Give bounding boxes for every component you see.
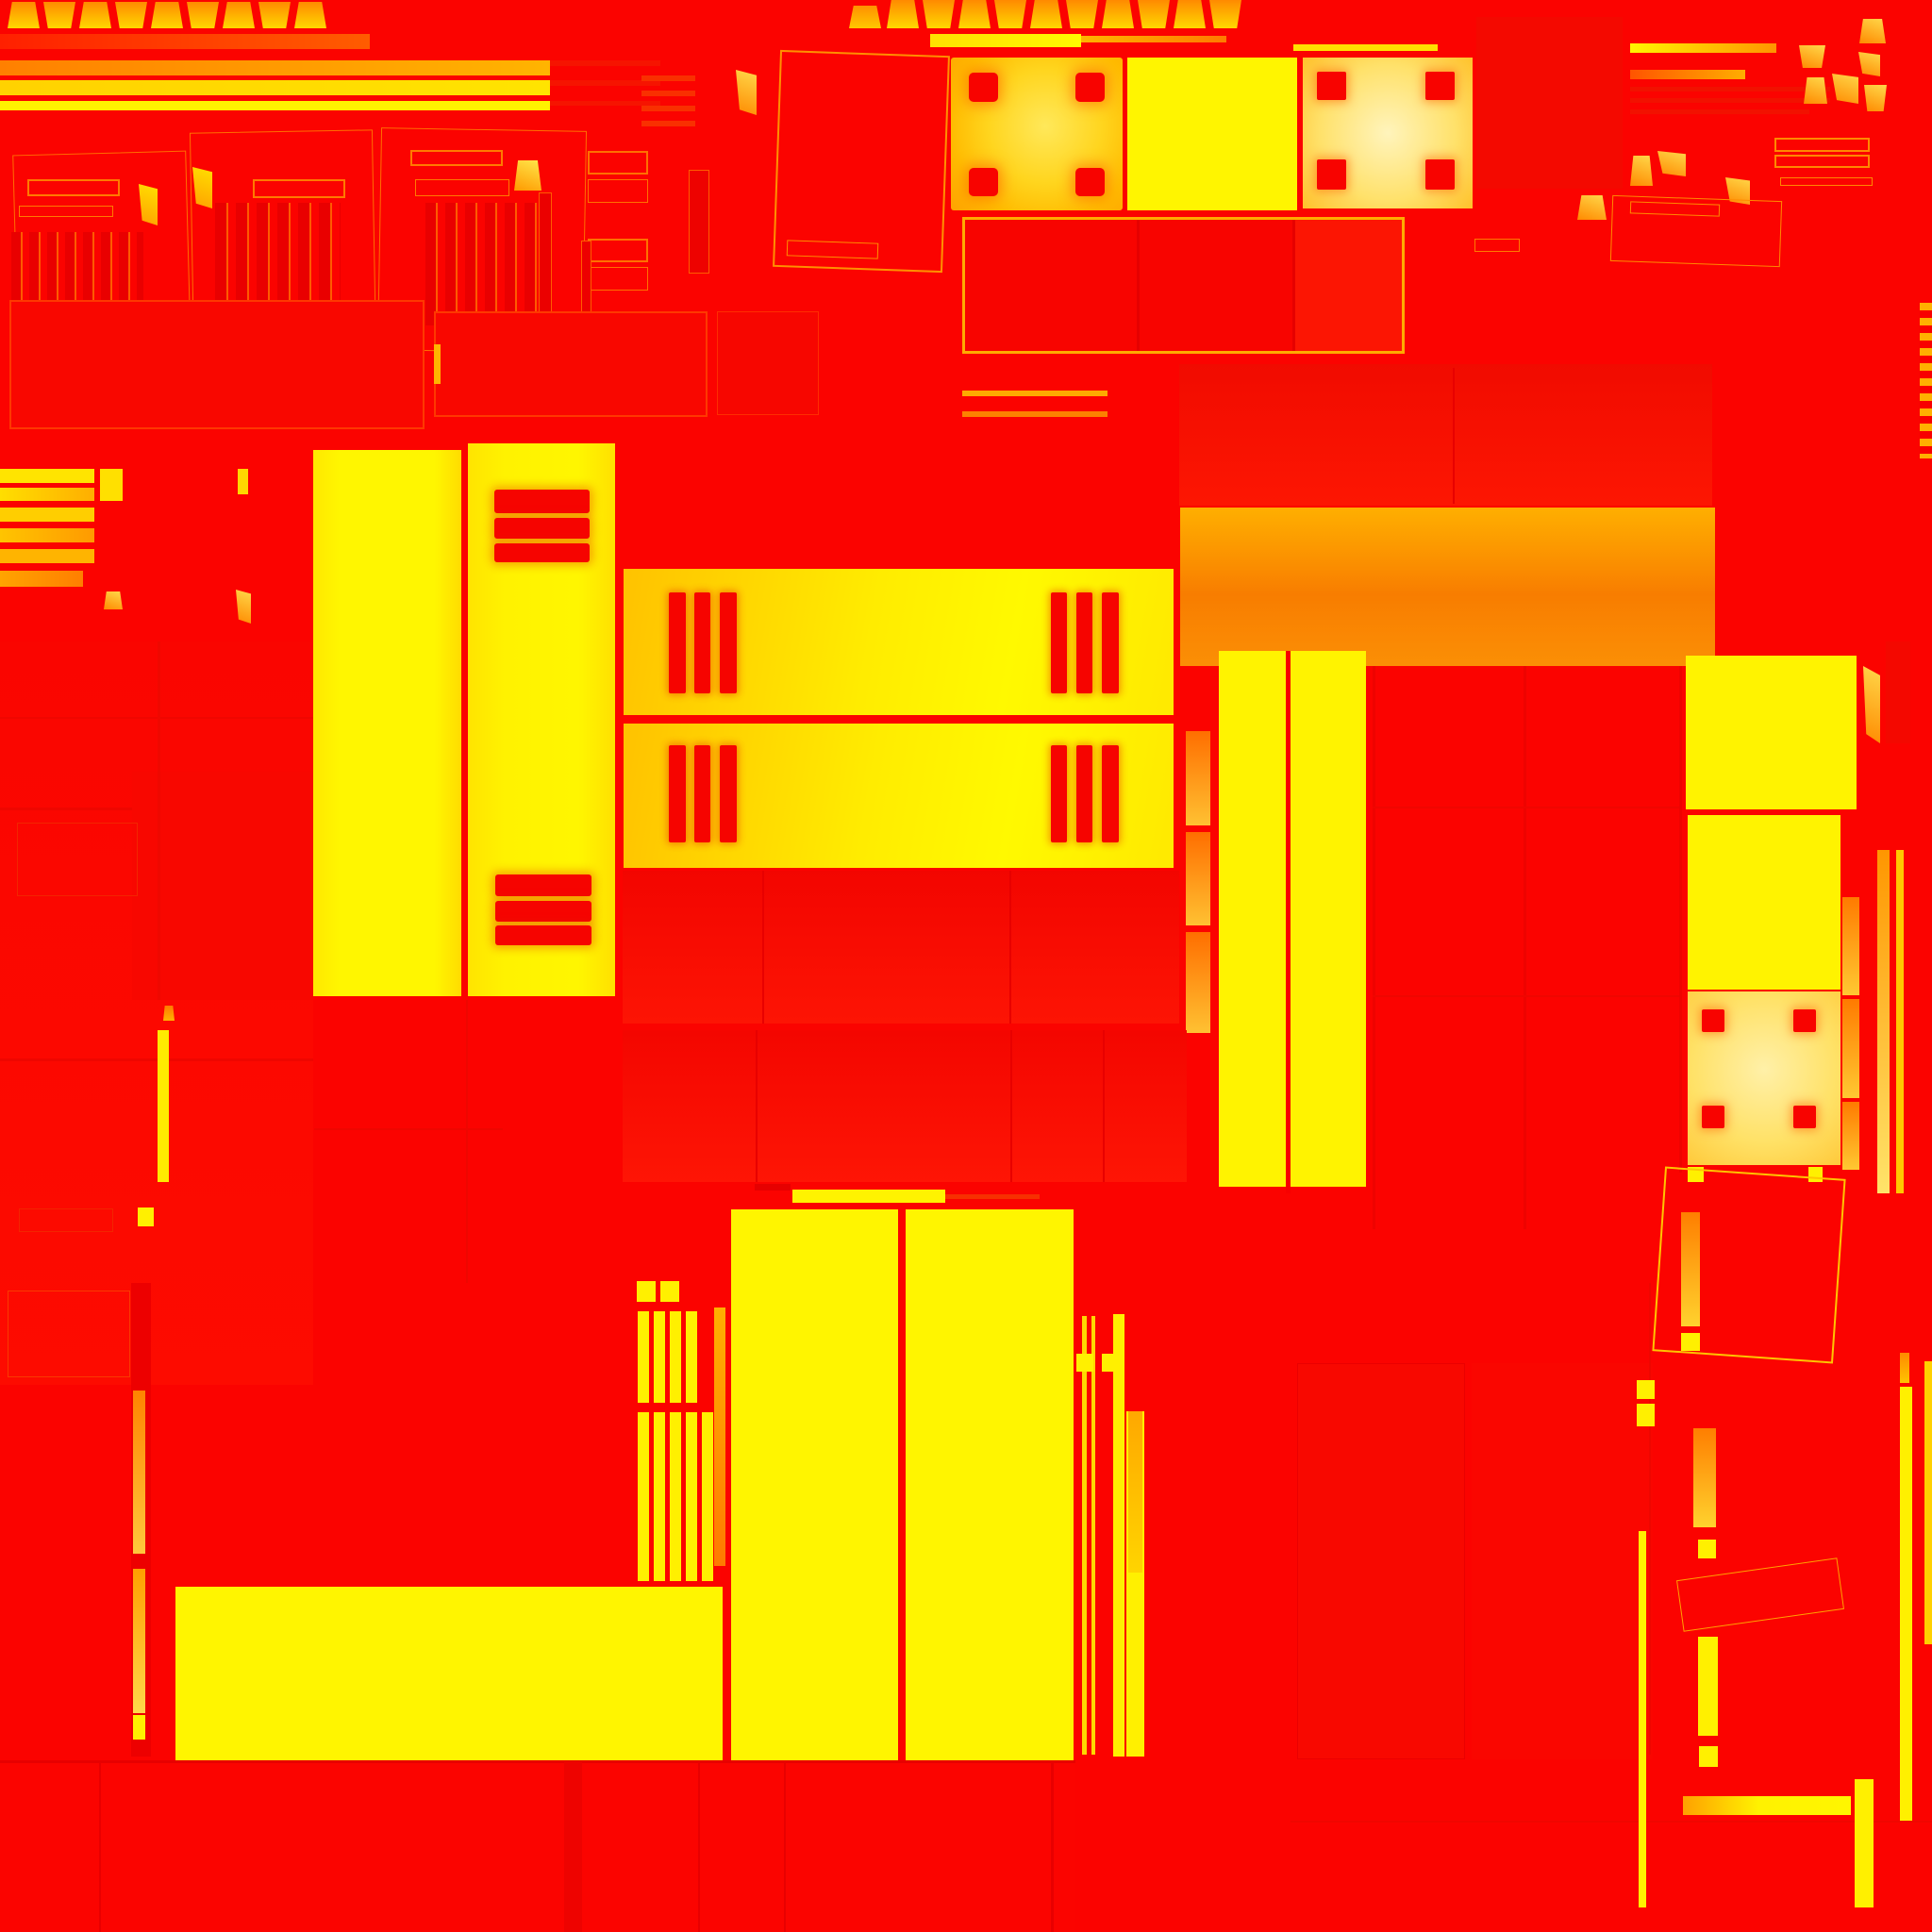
yellow-vbar xyxy=(1855,1779,1874,1907)
thin-yellow-line xyxy=(1082,1316,1087,1755)
container-inner-rect xyxy=(415,179,509,196)
small-yellow-square xyxy=(1637,1404,1655,1426)
dice-dot xyxy=(1317,159,1346,190)
centerleft-seam xyxy=(466,1000,468,1283)
bottom-yellow-column xyxy=(731,1209,898,1760)
band-bar xyxy=(1102,745,1119,842)
wedge-cluster xyxy=(1859,19,1886,43)
slat-bar xyxy=(588,239,648,262)
leftedge-stripe xyxy=(0,469,94,483)
left-col-wedge xyxy=(163,1006,175,1021)
left-vstripe xyxy=(133,1391,145,1554)
hline-group xyxy=(641,106,695,111)
container-strip xyxy=(581,241,591,312)
trapezoid-row-center xyxy=(887,0,919,28)
underline-bar xyxy=(962,411,1108,417)
right-section-seam xyxy=(1679,644,1682,1173)
left-col-vstripe xyxy=(158,1030,169,1182)
tall-yellow-column xyxy=(1219,651,1366,1187)
topright-dark-panel xyxy=(1476,17,1623,189)
outline-box xyxy=(1774,138,1870,152)
small-yellow-square xyxy=(1076,1354,1093,1372)
faint-inset-rect xyxy=(19,1208,113,1232)
leftedge-wedge xyxy=(236,590,251,624)
band-bar xyxy=(1051,745,1067,842)
container-inner-rect xyxy=(410,150,503,166)
bottom-seam xyxy=(784,1762,786,1932)
edge-line xyxy=(1924,1361,1932,1644)
small-yellow-square xyxy=(1699,1746,1718,1767)
left-column-seam xyxy=(0,1058,313,1061)
trapezoid-row-left xyxy=(294,2,326,28)
leftedge-stripe xyxy=(0,549,94,563)
leftedge-stripe xyxy=(0,528,94,542)
bottomright-seam xyxy=(1649,1283,1651,1755)
wedge-cluster xyxy=(1864,85,1887,111)
orange-strip xyxy=(1186,832,1210,925)
edge-strip xyxy=(1877,850,1890,1193)
outline-bar xyxy=(1474,239,1520,252)
quad-orange-bar xyxy=(1681,1212,1700,1326)
trapezoid-row-center xyxy=(1174,0,1206,28)
yellow-hbar xyxy=(1683,1796,1851,1815)
wedge-mid xyxy=(1577,195,1607,220)
block-seam xyxy=(762,871,764,1024)
container-wedge xyxy=(736,70,757,115)
column-b-bar xyxy=(494,518,590,539)
outlined-panel-light xyxy=(1295,220,1402,351)
leftedge-stripe xyxy=(0,508,94,522)
left-vstripe xyxy=(133,1569,145,1713)
barcode-square xyxy=(660,1281,679,1302)
wedge-cluster xyxy=(1858,52,1880,76)
mid-red-panel xyxy=(9,300,425,429)
yellow-strip xyxy=(1113,1314,1124,1757)
stripe-gold xyxy=(0,80,550,95)
dark-bar xyxy=(755,1184,791,1191)
barcode-stripes xyxy=(638,1412,713,1581)
trapezoid-row-center xyxy=(1102,0,1134,28)
left-column-panel xyxy=(0,641,313,1385)
left-vstripe-tip xyxy=(133,1715,145,1740)
faint-outline-panel xyxy=(8,1291,130,1377)
edge-wedge xyxy=(1863,666,1880,743)
top-thin-lines xyxy=(1081,36,1226,42)
band-bar xyxy=(1051,592,1067,693)
orange-strip xyxy=(1842,999,1859,1098)
thin-yellow-line xyxy=(1091,1316,1095,1755)
band-bar xyxy=(720,745,737,842)
atlas-canvas xyxy=(0,0,1932,1932)
column-b-bar xyxy=(495,901,591,922)
trapezoid-row-left xyxy=(79,2,111,28)
stripe-tail xyxy=(550,60,660,66)
column-b-bar xyxy=(495,925,591,945)
leftedge-bit xyxy=(100,469,123,501)
bottom-strip-seam xyxy=(0,1760,1075,1763)
trapezoid-row-left xyxy=(258,2,291,28)
dice-dot xyxy=(1425,159,1455,190)
dice-dot xyxy=(1075,168,1105,196)
orange-strip xyxy=(1186,932,1210,1033)
trapezoid-row-center xyxy=(1066,0,1098,28)
centerleft-seam xyxy=(158,641,160,1000)
edge-line xyxy=(1900,1387,1912,1821)
topright-faint-line xyxy=(1630,98,1830,103)
small-yellow-square xyxy=(138,1207,154,1226)
right-section-seam xyxy=(1524,644,1526,1229)
container-inner-rect xyxy=(27,179,120,196)
column-b-bar xyxy=(494,543,590,562)
wedge-cluster xyxy=(1832,74,1858,104)
block-seam xyxy=(1010,1030,1012,1182)
band-bar xyxy=(720,592,737,693)
edge-strip xyxy=(1896,850,1904,1193)
right-section-seam xyxy=(1373,807,1679,808)
wedge-mid xyxy=(1657,151,1686,176)
bottom-seam xyxy=(564,1762,582,1932)
quad-orange-bar xyxy=(1693,1428,1716,1527)
tilted-thin-outline xyxy=(1676,1557,1844,1631)
dice-dot xyxy=(1793,1009,1816,1032)
band-bar xyxy=(1076,745,1092,842)
slat-bar xyxy=(588,151,648,175)
orange-strip-overlay xyxy=(1128,1411,1142,1573)
band-bar xyxy=(694,592,710,693)
outlined-panel-divider xyxy=(1137,220,1140,351)
faint-inset-rect xyxy=(17,823,138,896)
container-inner-rect xyxy=(787,240,879,258)
topright-orange-bar xyxy=(1630,70,1745,79)
container-box xyxy=(773,50,950,273)
bottomright-panel xyxy=(1472,1363,1653,1759)
barcode-orange-strip xyxy=(714,1307,725,1566)
wedge-mid xyxy=(1630,156,1653,186)
trapezoid-row-center xyxy=(994,0,1026,28)
outline-box xyxy=(1780,177,1873,186)
band-bar xyxy=(669,592,686,693)
right-yellow-square xyxy=(1688,815,1840,990)
leftedge-stripe xyxy=(0,488,94,501)
trapezoid-row-center xyxy=(958,0,991,28)
trapezoid-row-left xyxy=(187,2,219,28)
bright-panel xyxy=(1127,58,1297,210)
small-yellow-square xyxy=(1698,1540,1716,1558)
container-strip xyxy=(539,192,552,312)
hline-group xyxy=(641,121,695,126)
long-yellow-line xyxy=(1639,1531,1646,1907)
trapezoid-row-center xyxy=(1209,0,1241,28)
dice-dot xyxy=(1793,1106,1816,1128)
dice-dot xyxy=(1702,1009,1724,1032)
trapezoid-row-left xyxy=(8,2,40,28)
orange-band xyxy=(1180,508,1715,666)
orange-strip xyxy=(1186,731,1210,825)
small-yellow-square xyxy=(1637,1380,1655,1399)
left-column-seam xyxy=(0,717,313,719)
thin-lines xyxy=(945,1194,1040,1199)
topright-faint-line xyxy=(1630,109,1809,114)
bottom-seam xyxy=(698,1762,700,1932)
stripe-orange xyxy=(0,60,550,75)
right-yellow-square xyxy=(1686,656,1857,809)
topright-yellow-bar xyxy=(1630,43,1776,53)
outline-box xyxy=(1774,155,1870,168)
right-section-seam xyxy=(1373,644,1375,1229)
top-yellow-bar xyxy=(930,34,1081,47)
hline-group xyxy=(641,75,695,81)
column-b-bar xyxy=(495,874,591,896)
container-inner-rect xyxy=(253,179,345,198)
yellow-column-a xyxy=(313,450,461,996)
mid-red-panel xyxy=(434,311,708,417)
dice-dot xyxy=(969,73,998,102)
small-yellow-square xyxy=(1681,1333,1700,1351)
band-bar xyxy=(1076,592,1092,693)
trapezoid-row-left xyxy=(151,2,183,28)
dice-dot xyxy=(1425,72,1455,100)
topright-faint-line xyxy=(1630,87,1830,92)
yellow-thin-bar xyxy=(792,1190,945,1203)
container-wedge xyxy=(514,160,541,191)
orange-strip xyxy=(1842,897,1859,995)
trapezoid-row-left xyxy=(223,2,255,28)
container-inner-rect xyxy=(19,206,113,217)
slat-bar xyxy=(588,267,648,291)
dice-dot xyxy=(1317,72,1346,100)
block-seam xyxy=(756,1030,758,1182)
central-red-block xyxy=(623,871,1179,1024)
yellow-bar xyxy=(1698,1637,1718,1736)
topright-red-panel xyxy=(1886,641,1910,743)
right-section-seam xyxy=(1373,995,1679,997)
trapezoid-row-center xyxy=(1030,0,1062,28)
big-yellow-bar xyxy=(175,1587,723,1760)
dice-dot xyxy=(1702,1106,1724,1128)
underline-bar xyxy=(962,391,1108,396)
band-bar xyxy=(1102,592,1119,693)
wedge-cluster xyxy=(1804,77,1827,104)
stripe-bright xyxy=(0,101,550,110)
leftedge-wedge xyxy=(104,591,123,609)
hline-group xyxy=(641,91,695,96)
barcode-stripes xyxy=(638,1311,697,1403)
wedge-cluster xyxy=(1799,45,1825,68)
trapezoid-row-center xyxy=(1138,0,1170,28)
stripe-red-orange xyxy=(0,34,370,49)
container-slats xyxy=(425,203,547,325)
line-above-dice-b xyxy=(1293,44,1438,51)
bottom-yellow-column xyxy=(906,1209,1074,1760)
bottom-seam xyxy=(99,1762,101,1932)
barcode-square xyxy=(637,1281,656,1302)
block-seam xyxy=(1009,871,1011,1024)
trapezoid-row-left xyxy=(43,2,75,28)
centerleft-seam xyxy=(314,1128,503,1130)
tall-column-seam xyxy=(1286,651,1291,1193)
dice-dot xyxy=(1075,73,1105,102)
bottomright-panel xyxy=(1297,1363,1465,1759)
edge-triangle-strip xyxy=(1920,303,1932,458)
vstrip-pair xyxy=(689,170,709,274)
trapezoid-row-left xyxy=(115,2,147,28)
slat-bar xyxy=(588,179,648,203)
bottom-strip-panel xyxy=(0,1762,1075,1932)
band-bar xyxy=(669,745,686,842)
leftedge-stripe xyxy=(0,571,83,587)
mid-red-panel xyxy=(717,311,819,415)
edge-line-orange xyxy=(1900,1353,1909,1383)
bottomright-seam xyxy=(1291,1821,1932,1823)
trapezoid-lead xyxy=(849,6,881,28)
band-bar xyxy=(694,745,710,842)
crimson-band-seam xyxy=(1453,368,1455,504)
column-b-bar xyxy=(494,490,590,513)
leftedge-bit xyxy=(238,469,248,494)
block-seam xyxy=(1103,1030,1105,1182)
bottom-seam xyxy=(1051,1762,1054,1932)
crimson-band xyxy=(1179,364,1712,506)
panel-accent xyxy=(434,344,441,384)
trapezoid-row-center xyxy=(923,0,955,28)
orange-strip xyxy=(1842,1102,1859,1170)
dice-dot xyxy=(969,168,998,196)
